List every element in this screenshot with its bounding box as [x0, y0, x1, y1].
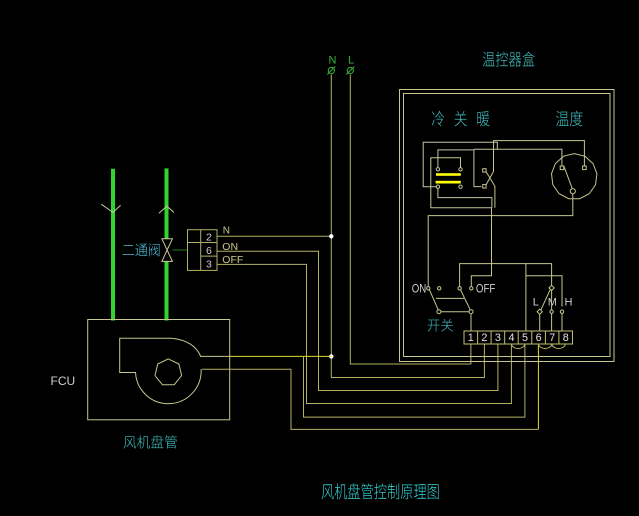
svg-text:L: L: [348, 55, 354, 67]
svg-text:6: 6: [206, 245, 212, 257]
svg-text:2: 2: [481, 332, 487, 344]
svg-text:1: 1: [468, 332, 474, 344]
svg-text:3: 3: [206, 258, 212, 270]
svg-text:L: L: [533, 297, 539, 309]
svg-text:6: 6: [536, 332, 542, 344]
svg-text:8: 8: [563, 332, 569, 344]
svg-text:M: M: [548, 297, 557, 309]
svg-text:2: 2: [206, 231, 212, 243]
svg-text:5: 5: [522, 332, 528, 344]
svg-text:ON: ON: [412, 284, 427, 296]
svg-text:N: N: [223, 226, 230, 237]
svg-text:H: H: [565, 297, 573, 309]
svg-text:OFF: OFF: [476, 284, 496, 296]
svg-text:4: 4: [508, 332, 514, 344]
svg-text:FCU: FCU: [51, 374, 76, 388]
svg-text:N: N: [329, 55, 337, 67]
svg-text:7: 7: [549, 332, 555, 344]
svg-text:3: 3: [495, 332, 501, 344]
